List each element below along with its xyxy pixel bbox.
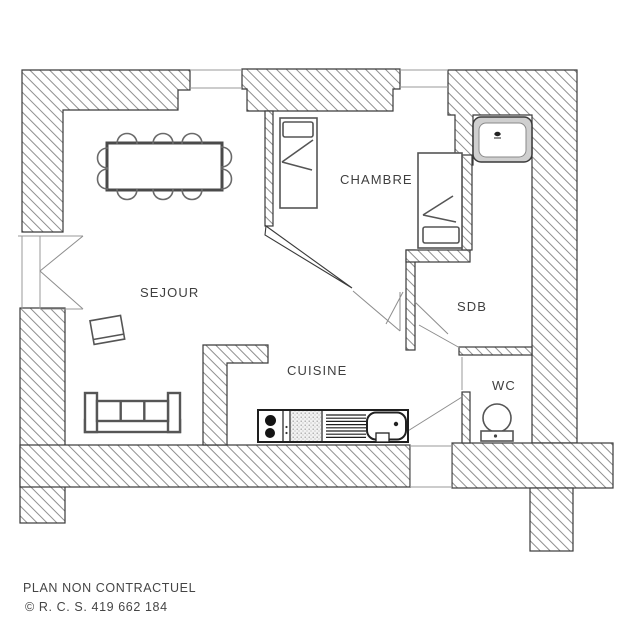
partition-wc-left	[462, 392, 470, 443]
room-label-cuisine: CUISINE	[287, 363, 347, 378]
french-door-left	[18, 236, 83, 309]
floor-plan: SEJOUR CHAMBRE CUISINE SDB WC PLAN NON C…	[0, 0, 619, 640]
appliance-stipple	[291, 411, 321, 441]
wall-bottom-pier	[530, 488, 573, 551]
partition-chambre-sdb-vertical	[462, 155, 472, 250]
dining-table-icon	[98, 134, 232, 200]
room-label-wc: WC	[492, 378, 516, 393]
window-bottom	[410, 443, 452, 488]
footer-disclaimer: PLAN NON CONTRACTUEL	[23, 581, 196, 595]
footer-registration: © R. C. S. 419 662 184	[25, 600, 168, 614]
sofa-icon	[85, 393, 180, 432]
partition-chambre-diagonal	[265, 226, 352, 288]
partition-chambre-sdb-horizontal	[406, 250, 470, 262]
kitchen-counter-icon	[258, 410, 408, 442]
wall-left-lower	[20, 308, 65, 523]
partition-sdb-left	[406, 250, 415, 350]
single-bed-icon-left	[280, 118, 317, 208]
footer: PLAN NON CONTRACTUEL © R. C. S. 419 662 …	[23, 581, 196, 614]
window-top-right	[400, 70, 448, 87]
room-label-chambre: CHAMBRE	[340, 172, 413, 187]
single-bed-icon-right	[418, 153, 462, 248]
partition-wc-top	[459, 347, 532, 355]
sink-icon	[367, 413, 406, 443]
shower-tray-icon	[473, 117, 532, 162]
room-label-sejour: SEJOUR	[140, 285, 199, 300]
room-label-sdb: SDB	[457, 299, 487, 314]
window-top-left	[190, 70, 242, 88]
wall-top-middle	[242, 69, 400, 111]
wall-bottom-right-band	[452, 443, 613, 488]
wall-bottom-left-band	[20, 445, 410, 487]
floor-plan-svg: SEJOUR CHAMBRE CUISINE SDB WC PLAN NON C…	[0, 0, 619, 640]
toilet-icon	[481, 404, 513, 441]
partition-chambre-left	[265, 111, 273, 226]
side-table-icon	[90, 315, 125, 344]
